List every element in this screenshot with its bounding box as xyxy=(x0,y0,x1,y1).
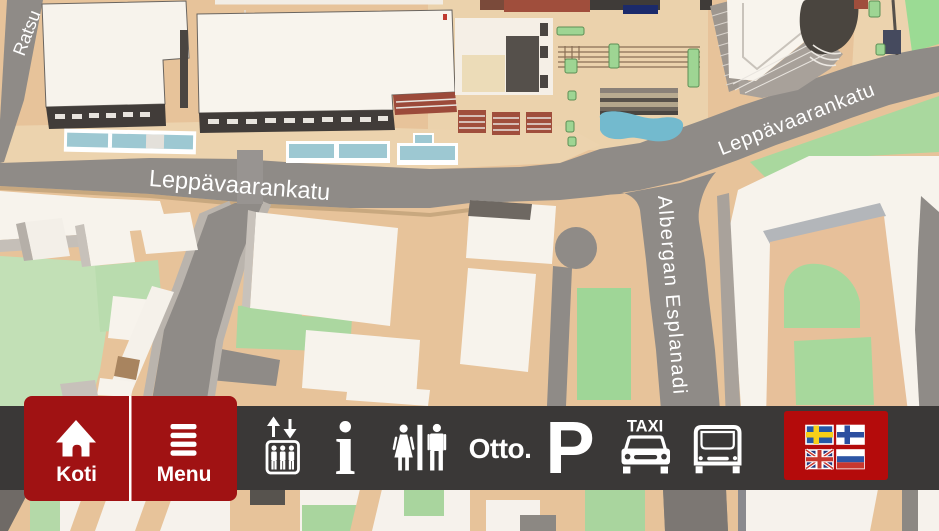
svg-text:i: i xyxy=(334,407,355,491)
svg-text:Otto.: Otto. xyxy=(469,433,532,464)
svg-text:P: P xyxy=(545,406,594,489)
svg-text:Koti: Koti xyxy=(56,463,97,486)
svg-text:Menu: Menu xyxy=(157,463,212,486)
svg-text:TAXI: TAXI xyxy=(627,418,663,436)
